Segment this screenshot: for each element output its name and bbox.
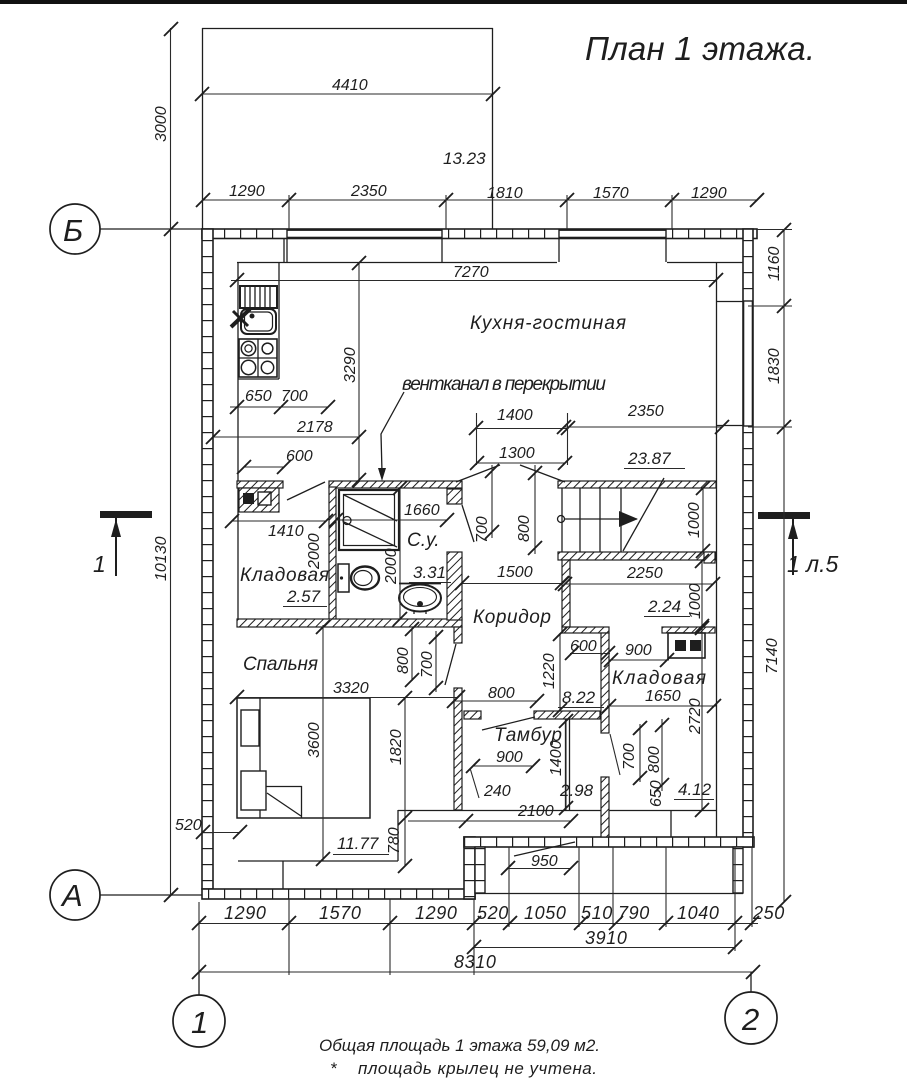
svg-text:2178: 2178 — [296, 419, 333, 436]
svg-text:700: 700 — [621, 743, 638, 770]
svg-text:780: 780 — [386, 827, 403, 854]
svg-text:2000: 2000 — [383, 548, 400, 585]
svg-text:2720: 2720 — [687, 698, 704, 735]
svg-text:А: А — [60, 878, 83, 913]
svg-text:3290: 3290 — [342, 347, 359, 383]
svg-text:1220: 1220 — [541, 653, 558, 689]
svg-text:8.22: 8.22 — [562, 688, 596, 707]
svg-text:2250: 2250 — [626, 565, 663, 582]
svg-text:240: 240 — [483, 783, 511, 800]
svg-text:520: 520 — [175, 817, 202, 834]
svg-text:650: 650 — [648, 780, 665, 807]
svg-text:Кладовая: Кладовая — [612, 668, 706, 689]
svg-text:3910: 3910 — [585, 928, 627, 948]
svg-text:1050: 1050 — [524, 903, 566, 923]
svg-text:900: 900 — [496, 749, 523, 766]
svg-text:* площадь крылец не учтена.: * площадь крылец не учтена. — [330, 1059, 597, 1078]
svg-text:600: 600 — [570, 638, 597, 655]
svg-text:вентканал в перекрытии: вентканал в перекрытии — [402, 374, 606, 395]
svg-text:600: 600 — [286, 448, 313, 465]
svg-text:Кладовая: Кладовая — [240, 565, 329, 586]
svg-text:800: 800 — [646, 746, 663, 773]
svg-text:1400: 1400 — [497, 407, 533, 424]
svg-text:800: 800 — [516, 515, 533, 542]
svg-text:3000: 3000 — [153, 106, 170, 142]
svg-text:900: 900 — [625, 642, 652, 659]
svg-text:1300: 1300 — [499, 445, 535, 462]
svg-text:Общая площадь 1 этажа 59,09 м2: Общая площадь 1 этажа 59,09 м2. — [319, 1036, 600, 1055]
svg-text:1040: 1040 — [677, 903, 719, 923]
svg-text:1410: 1410 — [268, 523, 304, 540]
svg-text:2: 2 — [741, 1002, 759, 1037]
svg-text:3320: 3320 — [333, 680, 369, 697]
svg-text:1000: 1000 — [687, 583, 704, 619]
svg-text:800: 800 — [395, 647, 412, 674]
svg-text:510: 510 — [581, 903, 613, 923]
svg-text:7140: 7140 — [764, 638, 781, 674]
svg-text:1: 1 — [191, 1005, 208, 1040]
svg-text:1570: 1570 — [593, 185, 629, 202]
svg-text:700: 700 — [419, 651, 436, 678]
svg-text:10130: 10130 — [153, 536, 170, 581]
svg-text:1 л.5: 1 л.5 — [787, 551, 839, 577]
svg-text:2.24: 2.24 — [647, 597, 681, 616]
svg-text:2.57: 2.57 — [286, 587, 321, 606]
svg-text:3600: 3600 — [306, 722, 323, 758]
svg-text:11.77: 11.77 — [337, 834, 379, 853]
svg-text:1400: 1400 — [548, 740, 565, 776]
svg-text:1290: 1290 — [415, 903, 457, 923]
svg-text:2350: 2350 — [350, 183, 387, 200]
svg-text:1820: 1820 — [388, 729, 405, 765]
svg-text:С.у.: С.у. — [407, 530, 440, 551]
svg-text:1290: 1290 — [229, 183, 265, 200]
svg-text:800: 800 — [488, 685, 515, 702]
svg-text:1290: 1290 — [691, 185, 727, 202]
svg-text:790: 790 — [618, 903, 650, 923]
svg-text:1650: 1650 — [645, 688, 681, 705]
svg-text:4.12: 4.12 — [678, 780, 712, 799]
svg-text:13.23: 13.23 — [443, 149, 486, 168]
svg-text:1290: 1290 — [224, 903, 266, 923]
svg-text:Кухня-гостиная: Кухня-гостиная — [470, 313, 626, 334]
svg-text:1570: 1570 — [319, 903, 361, 923]
svg-text:1000: 1000 — [686, 502, 703, 538]
svg-text:Б: Б — [63, 213, 83, 248]
svg-text:700: 700 — [281, 388, 308, 405]
svg-text:Спальня: Спальня — [243, 654, 318, 675]
svg-text:План 1 этажа.: План 1 этажа. — [585, 30, 815, 67]
svg-text:950: 950 — [531, 853, 558, 870]
svg-text:1: 1 — [93, 551, 106, 577]
svg-text:1830: 1830 — [766, 348, 783, 384]
svg-text:1500: 1500 — [497, 564, 533, 581]
svg-text:Коридор: Коридор — [473, 607, 551, 628]
svg-text:2.98: 2.98 — [559, 781, 594, 800]
svg-text:1160: 1160 — [766, 246, 783, 281]
svg-text:650: 650 — [245, 388, 272, 405]
svg-text:1660: 1660 — [404, 502, 440, 519]
svg-text:520: 520 — [477, 903, 509, 923]
svg-text:3.31: 3.31 — [413, 563, 446, 582]
svg-text:1810: 1810 — [487, 185, 523, 202]
svg-text:4410: 4410 — [332, 77, 368, 94]
svg-text:250: 250 — [752, 903, 785, 923]
svg-text:7270: 7270 — [453, 264, 489, 281]
svg-text:2350: 2350 — [627, 403, 664, 420]
svg-text:8310: 8310 — [454, 952, 496, 972]
svg-text:23.87: 23.87 — [627, 449, 671, 468]
svg-text:700: 700 — [474, 516, 491, 543]
svg-text:2100: 2100 — [517, 803, 554, 820]
